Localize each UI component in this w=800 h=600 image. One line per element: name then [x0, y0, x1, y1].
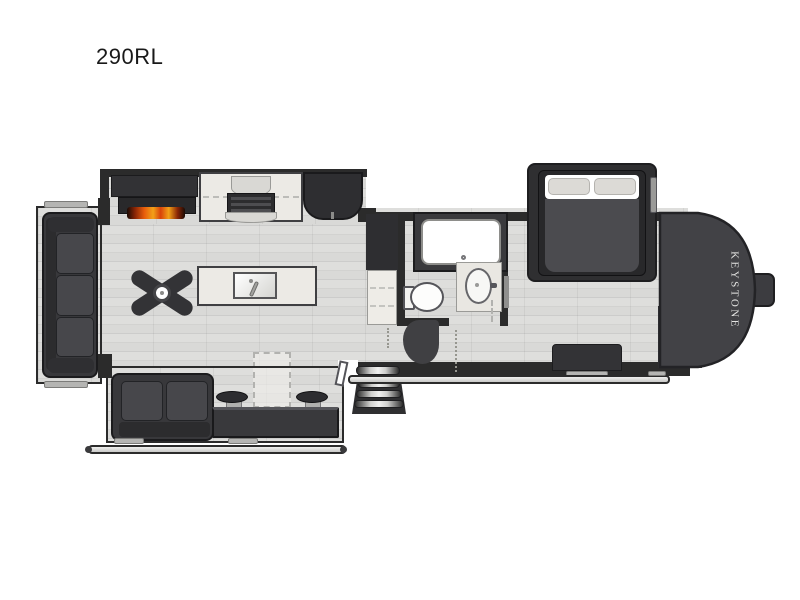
bottom-wall-right	[356, 362, 690, 376]
awning-knob	[85, 446, 92, 453]
rear-sofa-cushion	[56, 233, 94, 274]
pantry-dashed-line	[370, 287, 394, 289]
kitchen-island	[197, 266, 317, 306]
bedroom-dresser	[552, 344, 622, 371]
bed-pillow	[548, 178, 590, 195]
bedroom-step-half-wall	[504, 276, 509, 308]
shower-tray	[421, 219, 501, 265]
walkway-dotted-line	[455, 330, 457, 372]
ceiling-fan-hub-dot	[160, 291, 164, 295]
refrigerator	[303, 172, 363, 220]
brand-label: KEYSTONE	[728, 251, 740, 329]
floorplan-canvas: 290RL	[0, 0, 800, 600]
entry-step	[356, 390, 402, 398]
bed-slide-box	[527, 163, 657, 282]
stove-grate	[231, 196, 271, 212]
shower-drain	[461, 255, 466, 260]
rear-sofa-arm-bottom	[48, 358, 94, 373]
vanity-faucet	[490, 283, 497, 288]
door-swing-dashes	[491, 300, 493, 322]
toilet-bowl	[410, 282, 444, 312]
rear-sofa-arm-top	[48, 217, 94, 232]
pantry-dotted-line	[387, 328, 389, 348]
entry-step	[356, 366, 400, 375]
rear-slide-tab-bottom	[44, 381, 88, 388]
model-number-label: 290RL	[96, 44, 163, 70]
vanity-drain	[475, 283, 479, 287]
main-awning-rail	[348, 375, 670, 384]
slide-awning-rail	[88, 445, 346, 454]
slide-tab	[114, 438, 144, 444]
loveseat-cushion	[166, 381, 208, 421]
bathroom-cabinet	[366, 214, 398, 270]
loveseat-back	[119, 422, 210, 437]
rear-sofa	[42, 212, 98, 378]
loveseat	[111, 373, 214, 441]
stove-front-curve	[225, 212, 277, 223]
bed-frame	[538, 170, 646, 276]
refrigerator-handle	[331, 212, 334, 219]
rear-sofa-cushion	[56, 317, 94, 357]
entry-step	[354, 400, 404, 408]
island-faucet-dot	[249, 279, 253, 283]
fireplace-flames	[127, 207, 185, 219]
ceiling-fan-hub	[153, 284, 171, 302]
bed-pillow	[594, 178, 636, 195]
slide-tab	[228, 438, 258, 444]
awning-knob	[340, 446, 347, 453]
bar-stool	[216, 391, 248, 403]
bathroom-vanity	[456, 262, 502, 312]
bathroom-door	[403, 320, 439, 364]
entertainment-center	[111, 175, 198, 197]
loveseat-cushion	[121, 381, 163, 421]
rear-sofa-cushion	[56, 275, 94, 316]
rear-slide-tab-top	[44, 201, 88, 208]
bed-mattress	[545, 199, 639, 272]
pantry	[367, 270, 397, 325]
front-cap-svg: KEYSTONE	[650, 200, 780, 385]
pantry-dashed-line	[370, 305, 394, 307]
bar-stool	[296, 391, 328, 403]
stool-counter	[212, 407, 339, 438]
rear-sofa-back	[46, 218, 56, 370]
